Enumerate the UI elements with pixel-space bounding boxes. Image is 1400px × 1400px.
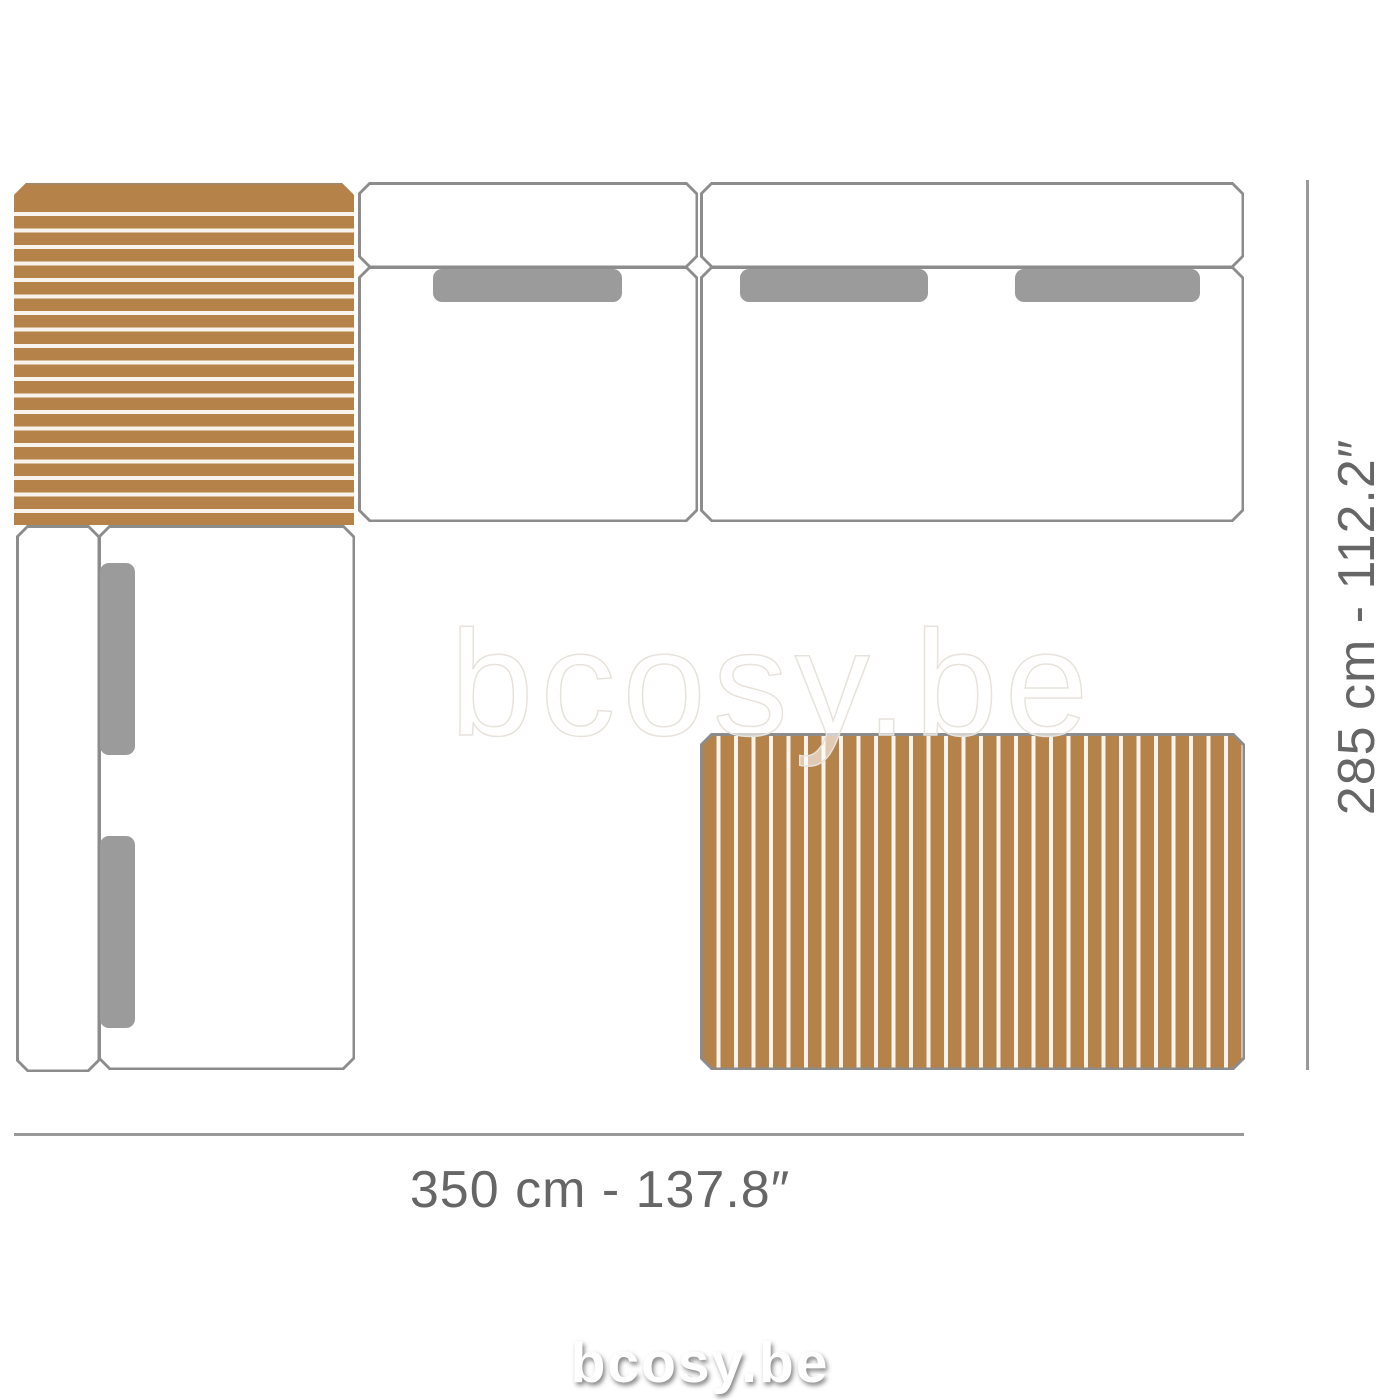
sofa-set-floorplan-diagram: 350 cm - 137.8″ 285 cm - 112.2″ bcosy.be…	[0, 0, 1400, 1400]
sofa-top-2-backrest	[700, 182, 1244, 268]
teak-slat-corner-panel	[14, 183, 354, 525]
seat-cushion-marker-4	[100, 563, 135, 755]
sofa-top-2-seat	[700, 266, 1244, 522]
width-dimension-line	[14, 1133, 1244, 1136]
sofa-top-1-seat	[358, 266, 698, 522]
seat-cushion-marker-2	[740, 269, 928, 302]
watermark-center: bcosy.be	[450, 597, 1095, 770]
watermark-bottom: bcosy.be	[571, 1330, 830, 1396]
teak-coffee-table	[700, 733, 1245, 1070]
height-dimension-label: 285 cm - 112.2″	[1327, 439, 1387, 815]
width-dimension-label: 350 cm - 137.8″	[410, 1160, 790, 1220]
sofa-left-backrest	[16, 525, 100, 1072]
height-dimension-line	[1306, 180, 1309, 1070]
seat-cushion-marker-1	[433, 269, 622, 302]
seat-cushion-marker-5	[100, 836, 135, 1028]
sofa-left-seat	[98, 525, 355, 1070]
seat-cushion-marker-3	[1015, 269, 1200, 302]
sofa-top-1-backrest	[358, 182, 698, 268]
